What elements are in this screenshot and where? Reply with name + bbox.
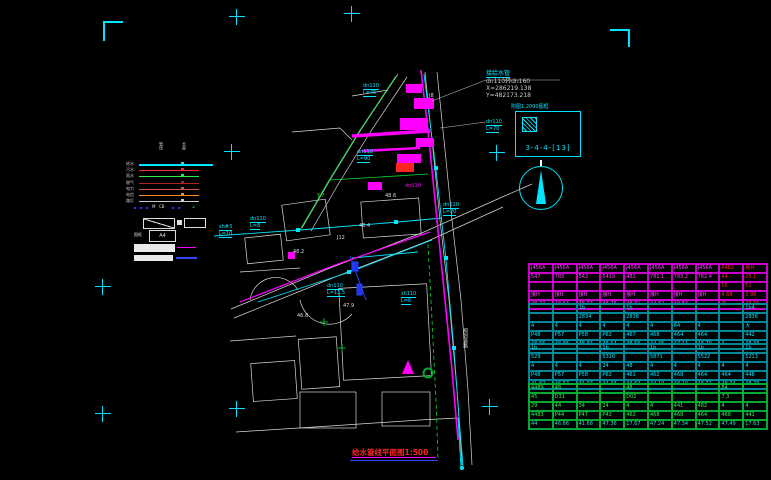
table-cell: 接H [553, 291, 577, 300]
table-cell: P62 [600, 331, 624, 340]
table-cell: 5310 [600, 353, 624, 362]
table-cell: 7.3 [719, 393, 743, 402]
table-cell [648, 304, 672, 313]
table-cell: P48 [529, 371, 553, 380]
map-label: dn110 [405, 183, 421, 189]
map-label: L=70 [486, 126, 499, 133]
scale-bar [134, 255, 173, 261]
table-cell [600, 313, 624, 322]
table-cell [577, 353, 601, 362]
table-cell: 接H [600, 291, 624, 300]
legend-mark: CB [159, 204, 165, 209]
table-cell: 1b [577, 304, 601, 313]
legend-dot-icon [178, 207, 180, 209]
detail-frame-label: 3-4-4-[13] [516, 144, 580, 152]
table-cell [719, 304, 743, 313]
table-cell [696, 384, 720, 393]
hatch-square-icon [522, 117, 537, 132]
table-cell: 464 [696, 411, 720, 420]
table-cell: 4489 [529, 384, 553, 393]
table-cell: 大 [743, 322, 767, 331]
map-label: dn110 [327, 283, 343, 290]
map-label: dn110 [363, 83, 379, 90]
map-label: sh110 [401, 291, 416, 298]
legend-line-sample [139, 183, 199, 184]
table-cell: 467 [624, 331, 648, 340]
legend-line-marker [181, 162, 184, 165]
table-cell: 468 [672, 371, 696, 380]
table-cell [719, 322, 743, 331]
table-cell: 4 [577, 322, 601, 331]
table-cell: P57 [553, 331, 577, 340]
legend-line-marker [181, 193, 184, 196]
table-cell: 84 [719, 384, 743, 393]
legend-line-marker [181, 174, 184, 177]
legend-mark: M [152, 204, 155, 209]
scale-symbol-icon [143, 218, 175, 229]
table-cell [553, 313, 577, 322]
map-label: dn110 [250, 216, 266, 223]
table-cell: 48 [624, 384, 648, 393]
table-cell: 3.98 [743, 291, 767, 300]
table-cell: 448 [743, 371, 767, 380]
table-cell: 46.66 [553, 420, 577, 429]
table-cell: 783.2 [672, 273, 696, 282]
table-cell: 48 [624, 362, 648, 371]
table-cell [648, 313, 672, 322]
table-cell: 2834 [577, 313, 601, 322]
annotation-x: X=286219.138 [486, 85, 531, 92]
table-cell [624, 344, 648, 353]
table-cell: 785 [553, 273, 577, 282]
legend-line-label: 电力 [126, 186, 134, 192]
table-cell: 4 [719, 402, 743, 411]
table-cell: 468 [648, 411, 672, 420]
table-cell: 529 [529, 353, 553, 362]
legend-dot-icon [146, 207, 148, 209]
table-cell [577, 393, 601, 402]
table-cell: 29 [529, 402, 553, 411]
map-label: L=10 [219, 231, 232, 238]
legend-line-marker [181, 199, 184, 202]
table-cell: 51 [743, 282, 767, 291]
table-cell: 468 [672, 411, 696, 420]
table-cell: 5871 [648, 353, 672, 362]
table-cell: 4 [648, 402, 672, 411]
table-cell [672, 313, 696, 322]
table-cell: 441 [743, 411, 767, 420]
table-cell: 4 [600, 322, 624, 331]
table-cell: P62 [600, 371, 624, 380]
north-arrow-icon [519, 164, 565, 210]
table-cell [696, 304, 720, 313]
legend: 管径 长度 给水污水雨水燃气电力电信路灯 M CB ∠ 图框 A4 [126, 140, 238, 270]
legend-line-marker [181, 181, 184, 184]
cad-canvas[interactable]: 管径 长度 给水污水雨水燃气电力电信路灯 M CB ∠ 图框 A4 附图1:20… [0, 0, 771, 480]
map-label: Y-7 [317, 193, 324, 199]
table-cell [600, 304, 624, 313]
table-cell: P42 [600, 411, 624, 420]
table-cell: 468 [648, 331, 672, 340]
table-cell: 5419 [600, 273, 624, 282]
table-cell: 接H [577, 291, 601, 300]
table-cell: J456A [624, 264, 648, 273]
table-cell: 1b [696, 344, 720, 353]
map-label: L=8 [250, 223, 260, 230]
table-cell: 4 [672, 362, 696, 371]
table-cell [672, 384, 696, 393]
table-cell [553, 282, 577, 291]
table-cell: 4 [648, 362, 672, 371]
table-cell [743, 384, 767, 393]
table-cell [672, 344, 696, 353]
table-cell [696, 313, 720, 322]
table-cell: 41.68 [577, 420, 601, 429]
legend-mark: ∠ [192, 204, 196, 209]
table-cell [624, 282, 648, 291]
table-cell: 1b [624, 304, 648, 313]
table-cell: 4 [577, 362, 601, 371]
table-cell: 24 [600, 362, 624, 371]
table-cell: J456A [577, 264, 601, 273]
table-cell: 1b [648, 344, 672, 353]
table-cell: 547 [529, 273, 553, 282]
table-cell: 接H [672, 291, 696, 300]
annotation-spec: dn110转dn160 [486, 78, 530, 85]
table-cell: D02 [624, 393, 648, 402]
table-cell: 47.24 [648, 420, 672, 429]
table-cell: 24 [600, 402, 624, 411]
title-underline [352, 457, 436, 458]
table-cell: 542 [577, 273, 601, 282]
table-cell: P58 [577, 371, 601, 380]
table-cell: 4 [743, 362, 767, 371]
table-cell: 4 [696, 322, 720, 331]
table-block: 448948488445D31D027.32944342444441482444… [528, 383, 768, 430]
table-cell: 781.1 [648, 273, 672, 282]
table-cell: 5213 [743, 353, 767, 362]
legend-line-label: 路灯 [126, 198, 134, 204]
table-cell [648, 384, 672, 393]
legend-line-sample [139, 170, 199, 171]
map-label: L=90 [357, 156, 370, 163]
table-cell [529, 313, 553, 322]
table-cell [672, 353, 696, 362]
legend-col-header: 长度 [181, 142, 187, 150]
legend-blue-line [176, 257, 197, 259]
map-label: L=11.5 [327, 290, 345, 297]
table-cell: 4 [648, 322, 672, 331]
table-cell: 464 [696, 371, 720, 380]
table-cell: 接H [529, 291, 553, 300]
table-cell: D31 [553, 393, 577, 402]
table-cell: J456A [672, 264, 696, 273]
table-cell: 462 [648, 371, 672, 380]
map-label: dn110 [357, 149, 373, 156]
map-label: L=20 [443, 209, 456, 216]
table-cell: 4 [529, 322, 553, 331]
table-cell: 482 [696, 402, 720, 411]
legend-line-sample [139, 176, 199, 177]
table-cell: 接H [624, 291, 648, 300]
map-label: dn110 [486, 119, 502, 126]
table-cell [577, 344, 601, 353]
annotation-name: 接给水管 [486, 70, 510, 78]
table-cell [719, 313, 743, 322]
legend-line-marker [181, 187, 184, 190]
table-cell: 481 [624, 273, 648, 282]
table-cell [648, 282, 672, 291]
legend-line-sample [139, 195, 199, 196]
table-cell [719, 344, 743, 353]
map-label: sh#3 [219, 224, 232, 231]
legend-square-icon [177, 220, 182, 225]
table-cell: 47.52 [696, 420, 720, 429]
legend-magenta-line [177, 247, 196, 248]
table-cell: 4.68 [719, 291, 743, 300]
legend-line-marker [181, 168, 184, 171]
table-cell [600, 393, 624, 402]
table-cell: 4483 [529, 411, 553, 420]
table-cell [743, 393, 767, 402]
table-cell: J456A [600, 264, 624, 273]
table-cell: J456A [648, 264, 672, 273]
map-label: L=6 [401, 298, 411, 305]
table-cell: J456A [529, 264, 553, 273]
table-cell: 25.1 [743, 273, 767, 282]
table-cell: 4 [553, 362, 577, 371]
table-cell: 接H [648, 291, 672, 300]
table-cell [696, 393, 720, 402]
legend-line-sample [139, 164, 213, 166]
map-label: dn110 [443, 202, 459, 209]
table-cell [696, 282, 720, 291]
table-cell [600, 282, 624, 291]
table-cell [672, 304, 696, 313]
legend-line-sample [139, 189, 199, 190]
legend-dot-icon [140, 207, 142, 209]
table-cell: 34 [577, 402, 601, 411]
legend-line-label: 燃气 [126, 180, 134, 186]
table-cell [577, 282, 601, 291]
table-cell: 47.36 [600, 420, 624, 429]
table-cell: 461 [624, 371, 648, 380]
table-cell: 1b [743, 344, 767, 353]
table-cell [719, 331, 743, 340]
table-cell [553, 344, 577, 353]
table-cell: P44 [553, 411, 577, 420]
table-cell [719, 353, 743, 362]
table-cell [529, 304, 553, 313]
map-label: 48.2 [293, 249, 304, 255]
table-cell: 4 [696, 362, 720, 371]
table-cell [577, 384, 601, 393]
table-cell [624, 353, 648, 362]
table-cell: P47 [577, 411, 601, 420]
north-triangle [536, 170, 546, 204]
legend-col-header: 管径 [158, 142, 164, 150]
table-cell: P48 [529, 331, 553, 340]
table-cell: 5522 [696, 353, 720, 362]
table-cell: 56 [719, 282, 743, 291]
table-cell: 1b [529, 344, 553, 353]
table-cell [529, 282, 553, 291]
detail-note: 附图1:2000图框 [511, 103, 549, 110]
table-cell: 接H [696, 291, 720, 300]
table-cell: 84 [672, 322, 696, 331]
table-cell: 441 [672, 402, 696, 411]
coordinate-annotation: 接给水管 dn110转dn160 X=286219.138 Y=482173.2… [486, 70, 531, 99]
table-cell [672, 393, 696, 402]
legend-line-sample [139, 201, 199, 202]
table-cell: J456A [696, 264, 720, 273]
table-cell [553, 304, 577, 313]
table-cell: 464 [719, 371, 743, 380]
map-label: 47.9 [343, 303, 354, 309]
table-cell [672, 282, 696, 291]
table-cell [648, 393, 672, 402]
title-underline [350, 460, 438, 461]
table-cell: P57 [553, 371, 577, 380]
map-label: 48.4 [359, 223, 370, 229]
table-cell: 464 [696, 331, 720, 340]
frame-label: 图框 [134, 232, 142, 238]
table-cell: 4 [529, 362, 553, 371]
table-cell: 468 [719, 411, 743, 420]
sheet-corner-ticks [103, 21, 630, 47]
map-label: J8 [429, 93, 434, 99]
table-cell: 4 [743, 402, 767, 411]
table-cell: 4 [624, 322, 648, 331]
table-cell: 44 [553, 402, 577, 411]
legend-frame-icon [184, 218, 206, 228]
table-cell: 1b [600, 344, 624, 353]
legend-dot-icon [172, 207, 174, 209]
table-cell: 4 [719, 362, 743, 371]
table-cell: 2836 [743, 313, 767, 322]
table-cell [553, 353, 577, 362]
legend-dot-icon [134, 207, 136, 209]
table-cell: 47.34 [672, 420, 696, 429]
table-cell: 1b4 [743, 304, 767, 313]
map-label: J12 [337, 235, 345, 241]
detail-frame: 3-4-4-[13] [515, 111, 581, 157]
map-label: 46.8 [297, 313, 308, 319]
table-cell: 44 [529, 420, 553, 429]
a4-frame-box: A4 [149, 230, 176, 242]
table-cell: 2838 [624, 313, 648, 322]
table-cell: 4 [553, 322, 577, 331]
table-cell: 48 [553, 384, 577, 393]
table-cell: 17.67 [624, 420, 648, 429]
table-cell: 462 [624, 411, 648, 420]
table-cell: 782.4 [696, 273, 720, 282]
map-label: 48.6 [385, 193, 396, 199]
annotation-y: Y=482173.218 [486, 92, 531, 99]
map-label: 规划道路 [462, 328, 468, 348]
table-cell: 44 [719, 273, 743, 282]
table-cell: J456A [553, 264, 577, 273]
table-cell: 464 [672, 331, 696, 340]
legend-line-label: 雨水 [126, 173, 134, 179]
table-cell: P58 [577, 331, 601, 340]
table-cell: 4 [624, 402, 648, 411]
table-cell: 17.63 [743, 420, 767, 429]
map-label: L=45 [363, 90, 376, 97]
table-cell: 接片 [743, 264, 767, 273]
table-cell: P482 [719, 264, 743, 273]
table-cell: 442 [743, 331, 767, 340]
table-cell: 45 [529, 393, 553, 402]
table-cell [600, 384, 624, 393]
scale-bar [134, 244, 175, 252]
table-cell: 47.49 [719, 420, 743, 429]
